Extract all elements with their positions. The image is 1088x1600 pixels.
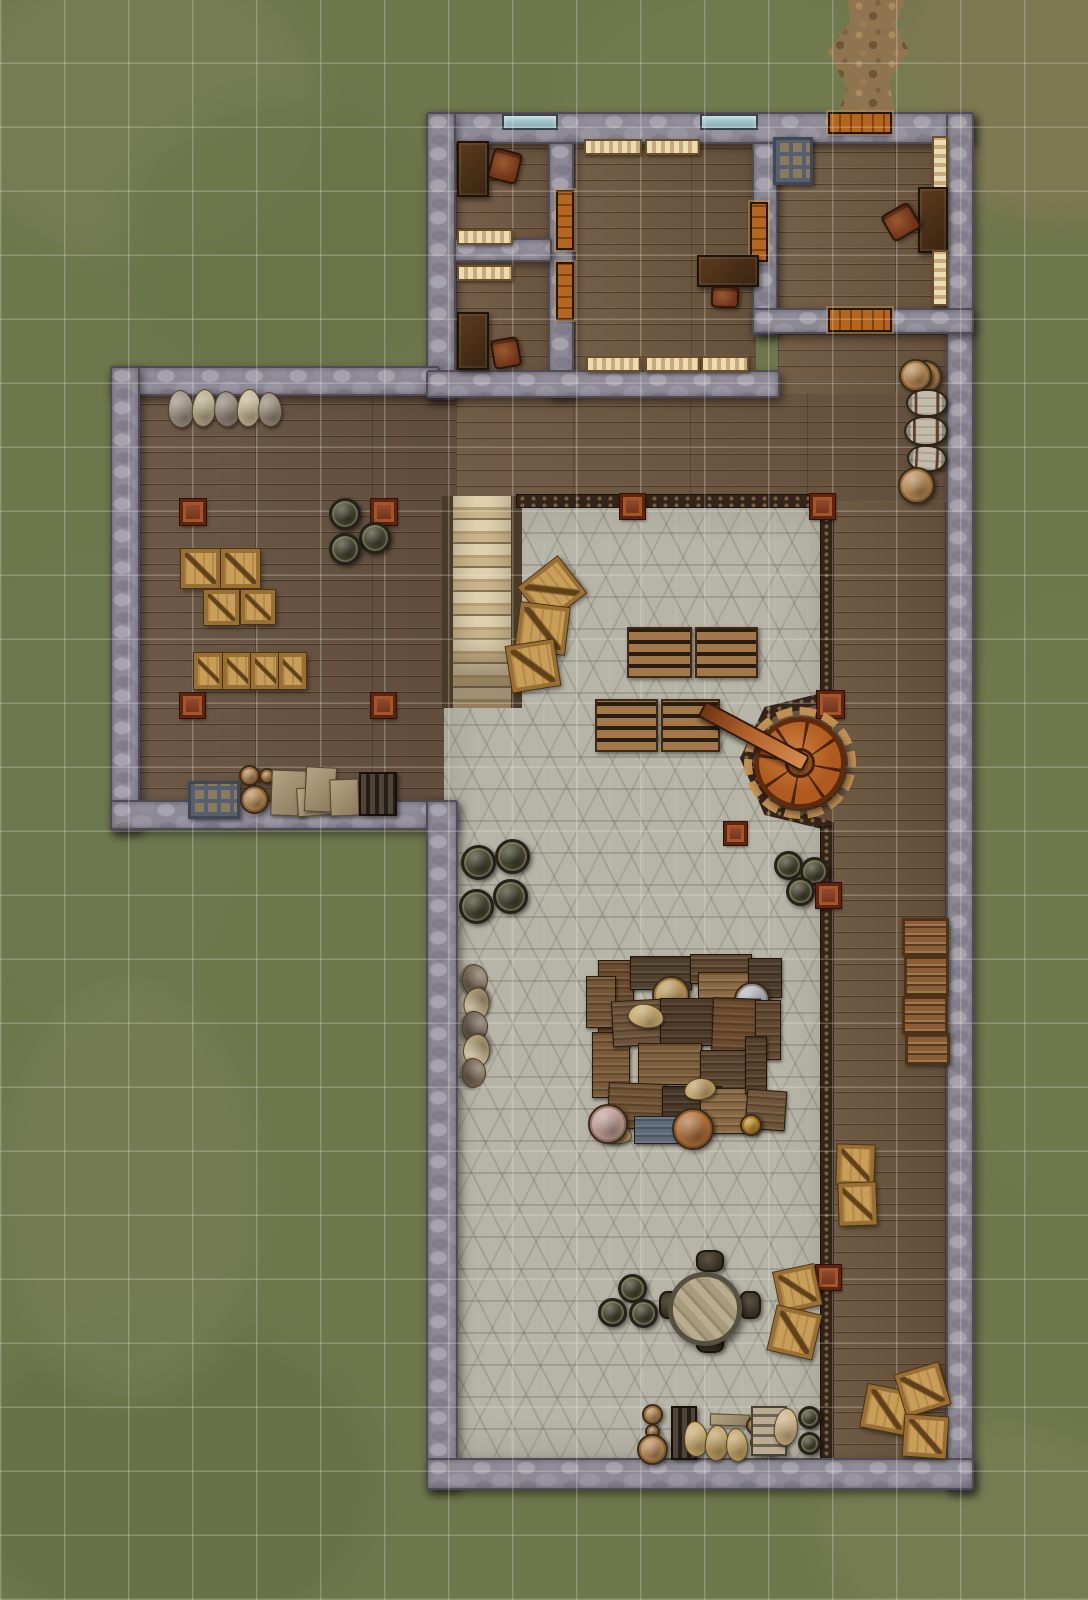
barrel — [672, 1108, 714, 1150]
small-crate — [371, 693, 396, 718]
barrel — [642, 1404, 663, 1425]
bench — [701, 356, 749, 372]
barrel — [786, 877, 815, 906]
stool — [739, 1291, 761, 1319]
shelf — [359, 772, 397, 816]
crate-stack — [904, 956, 949, 996]
crate — [223, 653, 252, 689]
pallet — [695, 627, 758, 678]
barrel — [359, 522, 391, 554]
desk — [457, 141, 489, 197]
desk — [697, 255, 759, 287]
barrel — [798, 1432, 821, 1455]
bench — [586, 356, 641, 372]
props-layer — [0, 0, 1088, 1600]
crate-stack — [902, 996, 948, 1034]
crate — [838, 1182, 876, 1225]
pallet — [595, 699, 658, 752]
barrel-on-side — [906, 389, 948, 417]
barrel — [459, 889, 494, 924]
plank-pile — [329, 779, 359, 817]
battle-map — [0, 0, 1088, 1600]
barrel — [798, 1406, 821, 1429]
crate-stack — [905, 1033, 950, 1065]
barrel — [240, 785, 269, 814]
crate — [768, 1306, 822, 1360]
barrel — [598, 1298, 627, 1327]
crate — [194, 653, 223, 689]
barrel — [898, 467, 935, 504]
pallet — [627, 627, 692, 678]
barrel — [899, 359, 932, 392]
crate — [221, 549, 260, 588]
chair — [880, 201, 923, 243]
sack — [724, 1427, 749, 1463]
desk — [918, 187, 948, 253]
barrel — [493, 879, 528, 914]
barrel — [774, 851, 803, 880]
barrel — [740, 1114, 762, 1136]
crate — [241, 590, 275, 624]
barrel — [495, 839, 530, 874]
crate — [506, 640, 561, 693]
barrel — [588, 1104, 628, 1144]
metal-rack — [773, 137, 813, 185]
cargo-box — [660, 998, 716, 1046]
barrel — [461, 845, 496, 880]
bench — [645, 356, 700, 372]
barrel — [637, 1434, 668, 1465]
crate — [204, 590, 239, 625]
small-crate — [180, 499, 206, 525]
sack — [257, 391, 284, 428]
barrel — [329, 498, 361, 530]
metal-rack — [188, 781, 240, 819]
barrel — [629, 1299, 658, 1328]
crate-stack — [902, 918, 949, 956]
bench — [584, 139, 642, 155]
barrel-on-side — [904, 416, 948, 446]
crate — [903, 1415, 949, 1459]
crate — [836, 1144, 874, 1185]
round-table — [668, 1272, 742, 1346]
small-crate — [816, 1265, 841, 1290]
cargo-box — [745, 1036, 767, 1094]
crate — [251, 653, 280, 689]
barrel — [329, 533, 361, 565]
desk — [457, 312, 489, 370]
crate — [181, 549, 220, 588]
bench — [645, 139, 700, 155]
small-crate — [180, 693, 205, 718]
bench — [932, 250, 948, 306]
crate — [279, 653, 306, 689]
chair — [490, 336, 523, 370]
bench — [932, 136, 948, 192]
bench — [457, 229, 513, 245]
small-crate — [724, 822, 747, 845]
small-crate — [810, 494, 835, 519]
chair — [711, 286, 740, 309]
sack — [462, 1058, 486, 1088]
small-crate — [620, 494, 645, 519]
stool — [696, 1250, 724, 1272]
chair — [487, 147, 524, 185]
bench — [457, 265, 513, 281]
barrel — [239, 765, 260, 786]
small-crate — [816, 883, 841, 908]
